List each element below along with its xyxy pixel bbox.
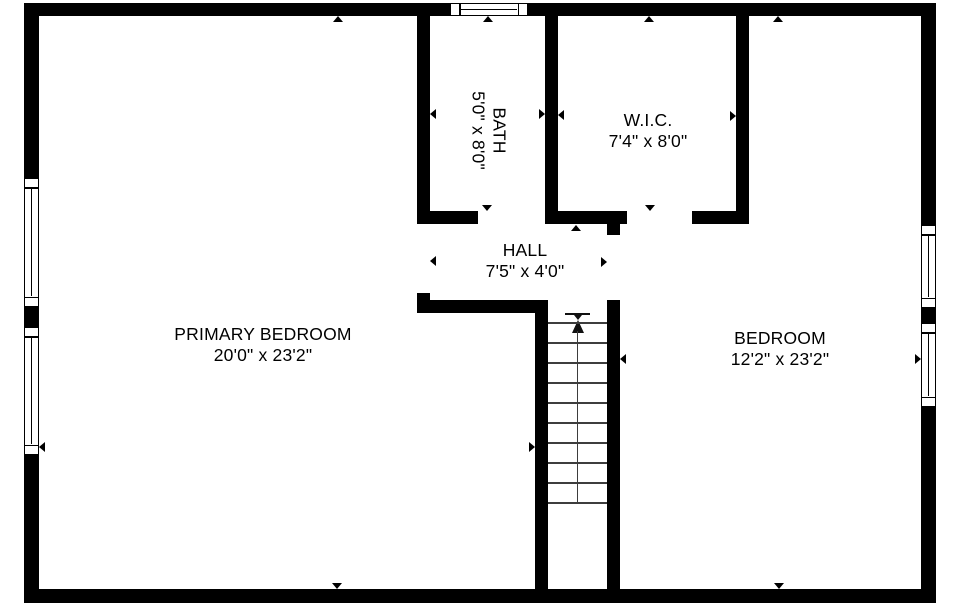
room-label-bath: BATH 5'0" x 8'0" bbox=[469, 70, 510, 192]
stair-tread bbox=[548, 422, 607, 424]
wall-marker-icon bbox=[39, 442, 45, 452]
window-symbol-top bbox=[450, 3, 528, 16]
window-symbol-left-lower bbox=[24, 327, 39, 455]
room-name: W.I.C. bbox=[568, 110, 728, 131]
stair-tread bbox=[548, 402, 607, 404]
window-cap bbox=[459, 4, 461, 15]
wall-outer-bottom bbox=[24, 589, 936, 603]
wall-bath-wic-divider bbox=[545, 3, 558, 224]
stair-tick-icon bbox=[574, 315, 582, 320]
wall-marker-icon bbox=[332, 583, 342, 589]
stair-tread bbox=[548, 362, 607, 364]
room-dimensions: 20'0" x 23'2" bbox=[113, 345, 413, 366]
room-dimensions: 12'2" x 23'2" bbox=[680, 349, 880, 370]
window-cap bbox=[25, 297, 38, 299]
window-cap bbox=[922, 397, 935, 399]
room-name: HALL bbox=[445, 240, 605, 261]
wall-stair-left bbox=[535, 300, 548, 592]
wall-marker-icon bbox=[333, 16, 343, 22]
room-name: BATH bbox=[489, 70, 510, 192]
room-label-hall: HALL 7'5" x 4'0" bbox=[445, 240, 605, 281]
wall-marker-icon bbox=[558, 110, 564, 120]
wall-hall-right-stub bbox=[607, 211, 620, 235]
window-pane-line bbox=[928, 334, 930, 396]
wall-bath-left bbox=[417, 3, 430, 224]
stair-tread bbox=[548, 502, 607, 504]
window-pane-line bbox=[928, 236, 930, 297]
window-cap bbox=[922, 332, 935, 334]
room-dimensions: 7'5" x 4'0" bbox=[445, 261, 605, 282]
window-pane-line bbox=[461, 9, 517, 11]
stair-tread bbox=[548, 322, 607, 324]
window-cap bbox=[922, 298, 935, 300]
door-marker-icon bbox=[482, 205, 492, 211]
window-pane-line bbox=[31, 189, 33, 296]
stair-tread bbox=[548, 462, 607, 464]
room-label-bedroom: BEDROOM 12'2" x 23'2" bbox=[680, 328, 880, 369]
wall-marker-icon bbox=[644, 16, 654, 22]
window-symbol-right-lower bbox=[921, 323, 936, 407]
stair-tread bbox=[548, 442, 607, 444]
wall-marker-icon bbox=[529, 442, 535, 452]
wall-bath-bottom bbox=[417, 211, 478, 224]
window-cap bbox=[922, 234, 935, 236]
stair-tread bbox=[548, 342, 607, 344]
stair-tread bbox=[548, 382, 607, 384]
staircase bbox=[548, 310, 607, 510]
floor-plan: PRIMARY BEDROOM 20'0" x 23'2" BEDROOM 12… bbox=[0, 0, 960, 613]
wall-hall-bottom bbox=[417, 300, 548, 313]
room-dimensions: 7'4" x 8'0" bbox=[568, 131, 728, 152]
stair-tread bbox=[548, 482, 607, 484]
wall-marker-icon bbox=[620, 354, 626, 364]
room-dimensions: 5'0" x 8'0" bbox=[469, 70, 490, 192]
wall-marker-icon bbox=[430, 109, 436, 119]
window-pane-line bbox=[31, 338, 33, 444]
stair-direction-line bbox=[577, 331, 579, 503]
window-symbol-left-upper bbox=[24, 178, 39, 307]
room-label-wic: W.I.C. 7'4" x 8'0" bbox=[568, 110, 728, 151]
wall-wic-right bbox=[736, 3, 749, 224]
window-cap bbox=[25, 187, 38, 189]
room-name: BEDROOM bbox=[680, 328, 880, 349]
wall-marker-icon bbox=[483, 16, 493, 22]
window-cap bbox=[518, 4, 520, 15]
window-cap bbox=[25, 445, 38, 447]
wall-marker-icon bbox=[773, 16, 783, 22]
room-label-primary-bedroom: PRIMARY BEDROOM 20'0" x 23'2" bbox=[113, 324, 413, 365]
wall-marker-icon bbox=[571, 225, 581, 231]
wall-stair-right bbox=[607, 300, 620, 592]
wall-marker-icon bbox=[774, 583, 784, 589]
door-marker-icon bbox=[430, 256, 436, 266]
door-marker-icon bbox=[645, 205, 655, 211]
wall-marker-icon bbox=[730, 111, 736, 121]
wall-marker-icon bbox=[539, 109, 545, 119]
window-symbol-right-upper bbox=[921, 225, 936, 308]
window-cap bbox=[25, 336, 38, 338]
room-name: PRIMARY BEDROOM bbox=[113, 324, 413, 345]
wall-marker-icon bbox=[915, 354, 921, 364]
